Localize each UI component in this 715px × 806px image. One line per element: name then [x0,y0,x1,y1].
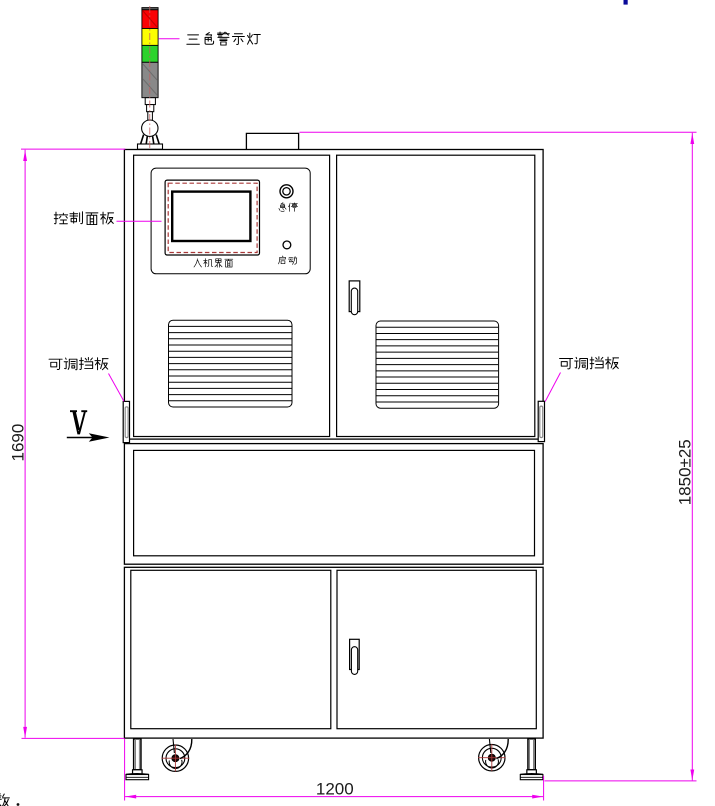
svg-text:1200: 1200 [316,780,354,799]
svg-text:1690: 1690 [8,424,27,462]
svg-text:1850±25: 1850±25 [676,439,695,505]
